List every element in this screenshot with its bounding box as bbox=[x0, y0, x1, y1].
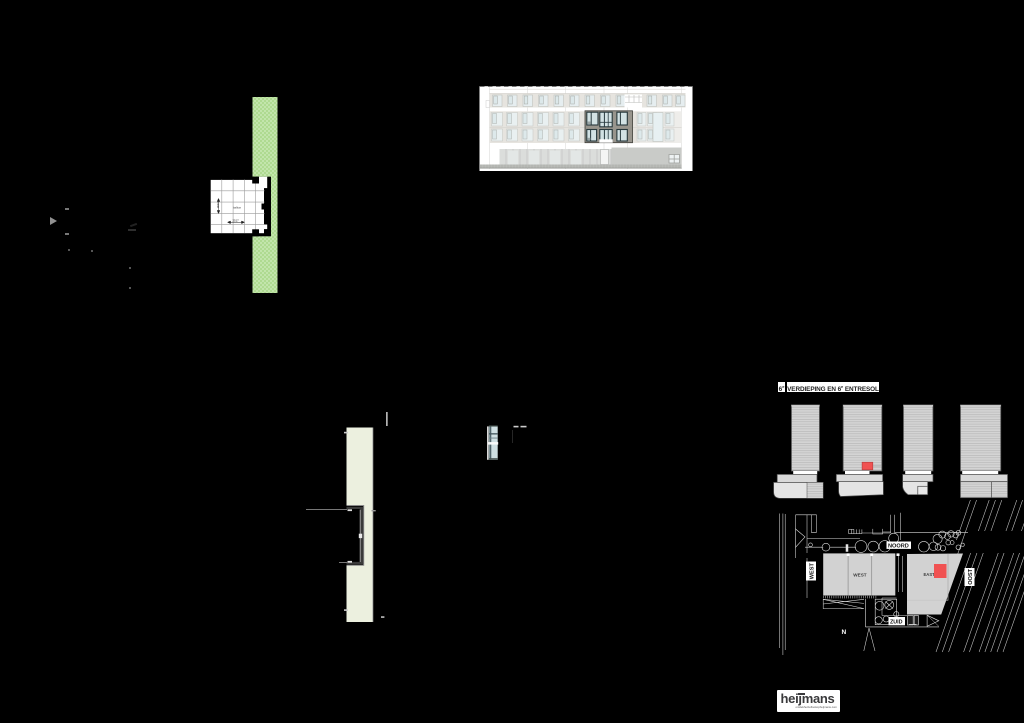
svg-text:OOST: OOST bbox=[968, 568, 974, 584]
svg-text:NOORD: NOORD bbox=[888, 544, 909, 550]
svg-text:balkon: balkon bbox=[233, 206, 242, 210]
svg-text:WEST: WEST bbox=[809, 563, 815, 580]
svg-text:3007: 3007 bbox=[216, 202, 220, 208]
svg-text:EAST: EAST bbox=[924, 572, 936, 577]
svg-text:2517: 2517 bbox=[233, 219, 240, 223]
svg-text:N: N bbox=[842, 629, 847, 636]
svg-text:WEST: WEST bbox=[853, 573, 866, 578]
svg-text:ZUID: ZUID bbox=[890, 620, 903, 626]
